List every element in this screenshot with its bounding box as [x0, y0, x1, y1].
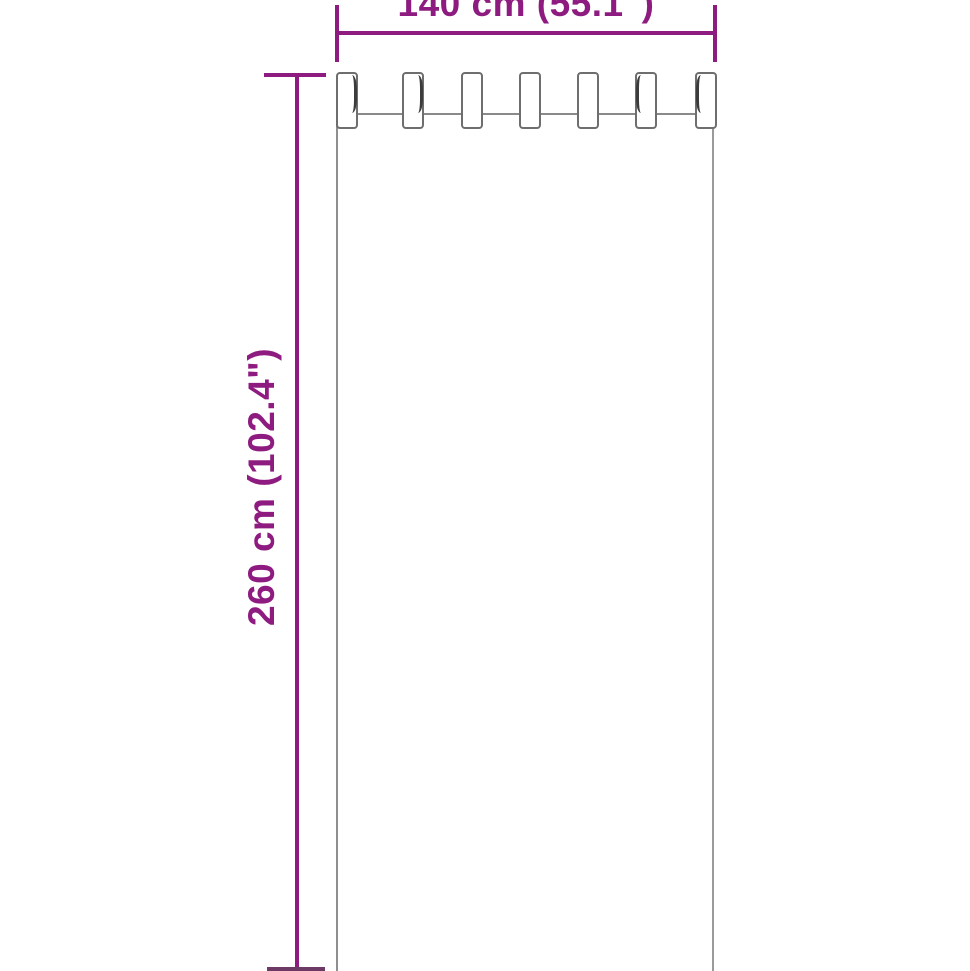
width-dimension-label: 140 cm (55.1") — [337, 0, 715, 24]
width-dimension-right-cap — [713, 5, 717, 62]
curtain-tab-loop — [402, 72, 424, 129]
height-dimension-top-cap — [264, 73, 326, 77]
curtain-tab-loop — [519, 72, 541, 129]
height-dimension-bottom-cap — [267, 967, 325, 971]
curtain-tab-loop — [461, 72, 483, 129]
curtain-tab-loop — [695, 72, 717, 129]
curtain-tab-loop — [577, 72, 599, 129]
width-dimension-left-cap — [335, 5, 339, 62]
height-dimension-label: 260 cm (102.4") — [240, 337, 284, 637]
curtain-tab-loop — [635, 72, 657, 129]
height-dimension-line — [295, 73, 299, 971]
dimension-diagram: 140 cm (55.1") 260 cm (102.4") — [0, 0, 970, 971]
curtain-tab-loop — [336, 72, 358, 129]
width-dimension-line — [337, 31, 715, 35]
curtain-body — [336, 113, 714, 971]
